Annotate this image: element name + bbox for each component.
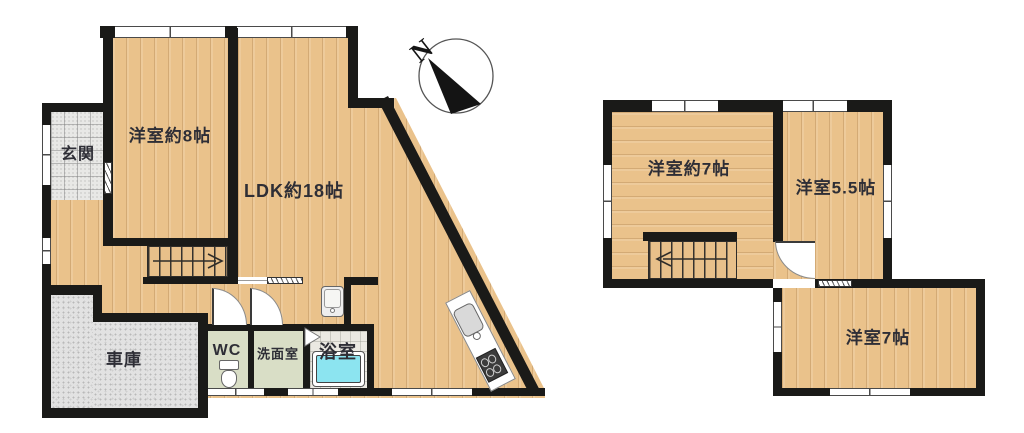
wall [348,26,358,108]
label-genkan: 玄関 [61,140,95,164]
label-western7a: 洋室約7帖 [648,155,730,180]
wall [103,28,113,246]
wall [42,408,208,418]
wall [42,103,108,112]
toilet-bowl [221,370,237,388]
window [652,100,718,112]
stairs-2f-down-arrow [651,250,731,268]
window [237,26,346,38]
window [42,238,51,264]
label-western8: 洋室約8帖 [129,122,211,147]
basin-faucet [330,308,335,313]
wall [603,279,773,288]
label-western55: 洋室5.5帖 [796,174,877,199]
wall [718,100,780,112]
label-garage: 車庫 [106,346,142,371]
wall [203,324,374,331]
window [208,388,264,396]
window [773,302,782,352]
door-opening [238,277,267,284]
window [288,388,338,396]
wall [643,232,737,241]
entrance-door [42,125,51,185]
window [780,100,847,112]
wall [351,277,378,285]
label-ldk: LDK約18帖 [244,177,344,203]
wall [143,277,238,284]
compass: N [406,26,506,126]
window [603,165,612,238]
stairs-1f-up-arrow [150,251,228,271]
wall [248,331,254,388]
wall [367,324,374,396]
wall [93,313,208,322]
basin-bowl [324,289,341,308]
wall [773,100,783,242]
sliding-door [267,277,303,284]
label-bath: 浴室 [319,338,357,364]
wall [103,238,238,246]
sliding-door [818,280,852,287]
label-western7b: 洋室7帖 [846,324,910,349]
window [883,165,892,238]
wall [976,279,985,396]
floor-plan: 玄関 洋室約8帖 LDK約18帖 車庫 WC 洗面室 浴室 N 洋室約7帖 [0,0,1024,433]
window [830,388,910,396]
window [115,26,225,38]
garage-floor [51,295,93,408]
wall [344,277,351,331]
toilet-tank [219,360,239,370]
label-washroom: 洗面室 [257,344,299,363]
window [392,388,472,396]
sliding-door [104,162,112,194]
label-wc: WC [213,342,242,360]
kitchen-faucet [471,331,482,342]
